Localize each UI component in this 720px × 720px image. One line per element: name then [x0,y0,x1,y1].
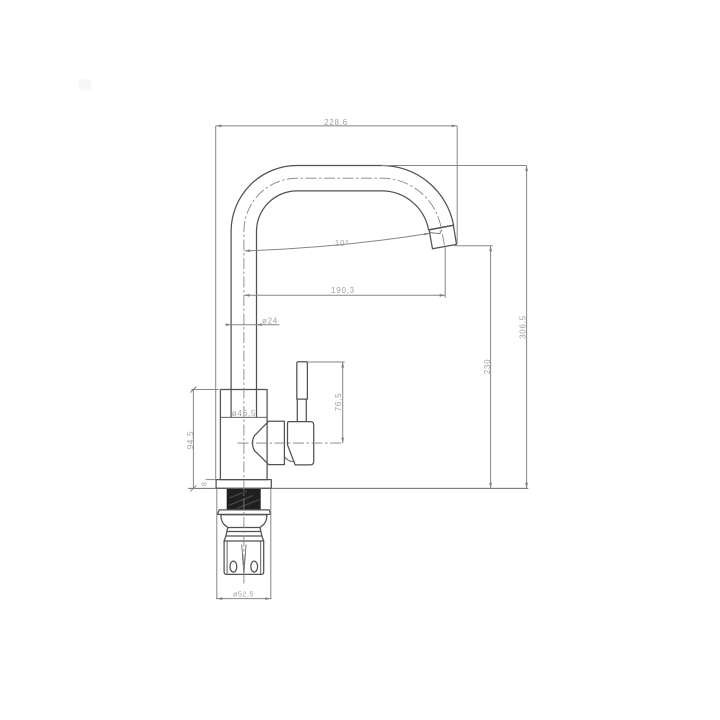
svg-text:228,6: 228,6 [324,118,348,127]
svg-text:ø24: ø24 [262,316,278,325]
svg-text:230: 230 [483,359,492,375]
svg-text:306,5: 306,5 [518,315,527,339]
svg-text:190,3: 190,3 [331,286,355,295]
svg-text:94,5: 94,5 [186,431,195,450]
svg-text:8: 8 [199,481,208,486]
svg-text:10°: 10° [335,239,349,248]
svg-text:ø46,5: ø46,5 [232,409,256,418]
svg-text:ø52,5: ø52,5 [233,590,254,599]
svg-text:76,5: 76,5 [334,393,343,412]
